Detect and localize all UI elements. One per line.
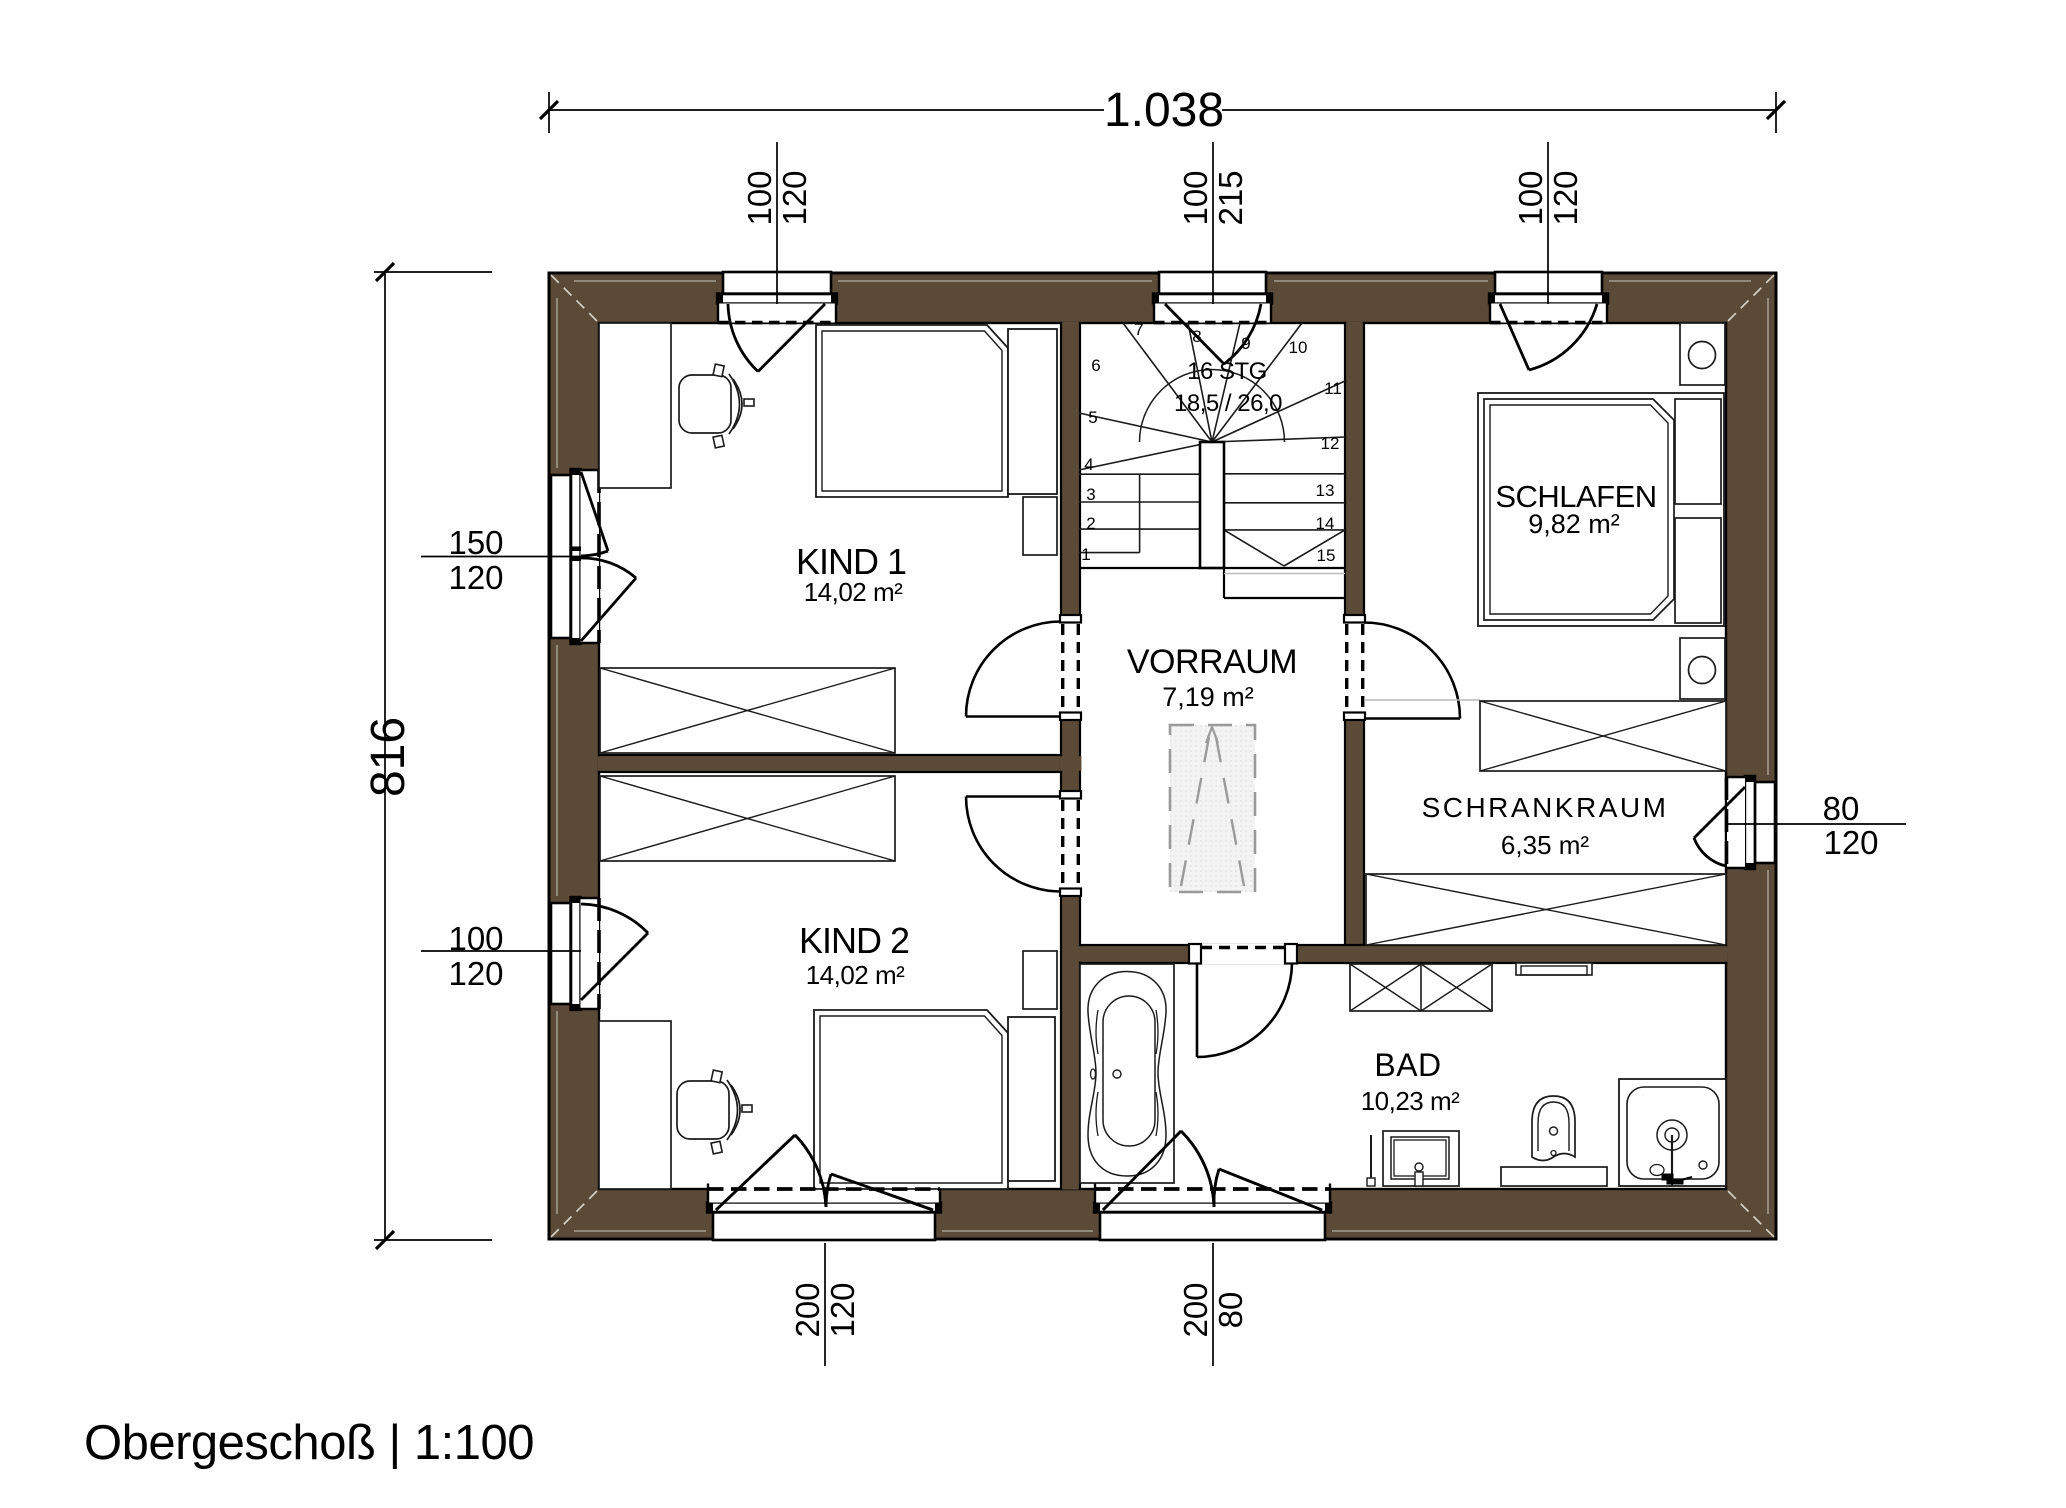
svg-text:120: 120 [776,170,813,225]
svg-text:6,35 m²: 6,35 m² [1501,830,1589,860]
svg-text:80: 80 [1823,790,1860,827]
svg-text:100: 100 [1177,170,1214,225]
svg-text:1: 1 [1081,545,1090,564]
svg-text:100: 100 [741,170,778,225]
svg-text:215: 215 [1212,170,1249,225]
svg-text:SCHRANKRAUM: SCHRANKRAUM [1422,792,1669,823]
svg-text:13: 13 [1316,481,1335,500]
svg-text:11: 11 [1324,379,1342,398]
svg-text:4: 4 [1084,455,1093,474]
svg-text:100: 100 [1512,170,1549,225]
svg-text:2: 2 [1086,514,1095,533]
svg-text:8: 8 [1192,327,1201,346]
svg-text:9: 9 [1241,334,1250,353]
svg-text:816: 816 [362,717,415,797]
svg-text:KIND 1: KIND 1 [796,541,906,582]
svg-text:3: 3 [1086,485,1095,504]
svg-text:120: 120 [1547,170,1584,225]
svg-text:18,5 / 26,0: 18,5 / 26,0 [1174,390,1282,417]
svg-text:200: 200 [789,1282,826,1337]
svg-text:Obergeschoß | 1:100: Obergeschoß | 1:100 [84,1416,534,1470]
svg-text:100: 100 [448,920,503,957]
svg-text:KIND 2: KIND 2 [799,920,909,961]
svg-text:120: 120 [1823,824,1878,861]
svg-text:VORRAUM: VORRAUM [1127,643,1297,681]
svg-text:7,19 m²: 7,19 m² [1162,682,1254,712]
svg-text:10: 10 [1289,338,1308,357]
svg-text:80: 80 [1212,1292,1249,1329]
svg-text:200: 200 [1177,1282,1214,1337]
svg-text:15: 15 [1317,546,1336,565]
svg-text:5: 5 [1088,408,1097,427]
svg-text:14: 14 [1316,514,1335,533]
svg-text:12: 12 [1321,434,1340,453]
svg-text:150: 150 [448,524,503,561]
svg-text:120: 120 [448,955,503,992]
svg-text:1.038: 1.038 [1104,84,1224,137]
svg-text:120: 120 [448,559,503,596]
svg-text:7: 7 [1134,320,1143,339]
svg-text:120: 120 [824,1282,861,1337]
svg-text:14,02 m²: 14,02 m² [806,960,905,990]
svg-text:6: 6 [1091,356,1100,375]
svg-text:16 STG: 16 STG [1187,358,1267,385]
svg-text:9,82 m²: 9,82 m² [1528,509,1620,539]
svg-text:10,23 m²: 10,23 m² [1361,1086,1460,1116]
svg-text:14,02 m²: 14,02 m² [804,577,903,607]
svg-text:BAD: BAD [1374,1047,1441,1083]
